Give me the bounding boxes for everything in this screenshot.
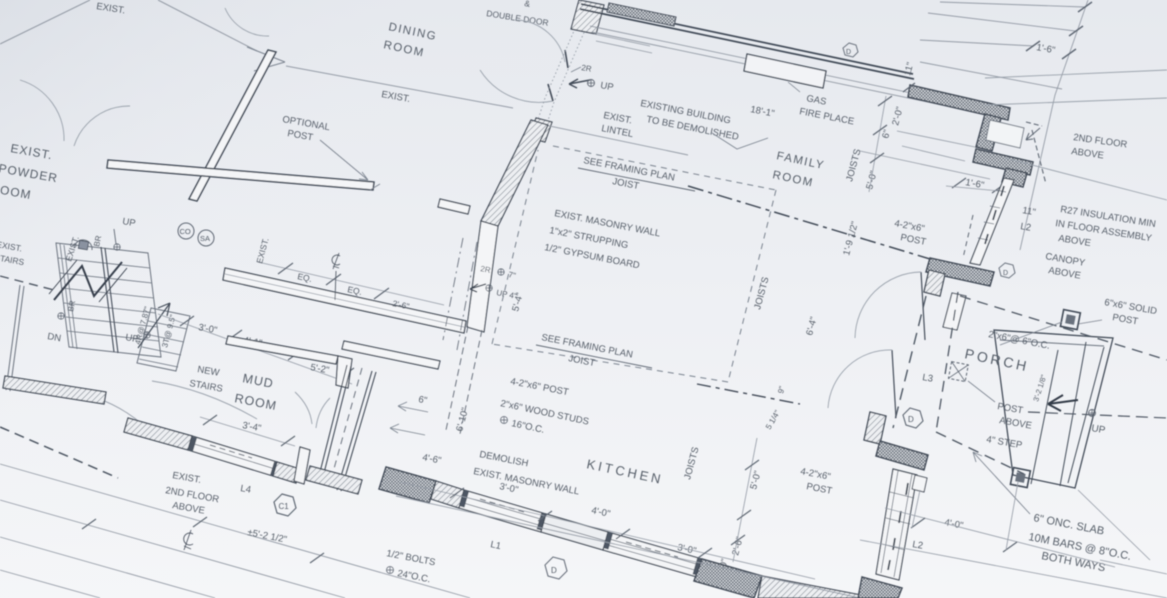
svg-text:L4: L4	[239, 483, 251, 496]
svg-text:L2: L2	[1019, 221, 1031, 234]
svg-text:C1: C1	[279, 502, 290, 511]
svg-text:D: D	[846, 49, 851, 56]
svg-text:CO: CO	[180, 227, 191, 236]
svg-text:UP: UP	[599, 80, 614, 93]
svg-text:2R: 2R	[581, 63, 593, 74]
svg-text:UP: UP	[124, 332, 139, 345]
svg-text:11": 11"	[1021, 205, 1036, 218]
svg-text:L1: L1	[489, 539, 502, 552]
svg-text:D: D	[1003, 270, 1008, 277]
svg-text:D: D	[908, 415, 914, 424]
svg-text:L3: L3	[921, 372, 933, 385]
svg-text:UP: UP	[121, 216, 136, 229]
svg-text:SA: SA	[200, 234, 210, 243]
svg-text:D: D	[551, 566, 557, 575]
